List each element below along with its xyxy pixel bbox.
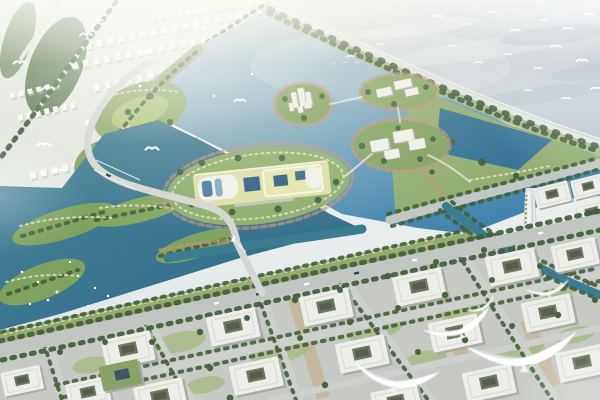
aerial-rendering bbox=[0, 0, 600, 400]
haze bbox=[0, 0, 600, 400]
